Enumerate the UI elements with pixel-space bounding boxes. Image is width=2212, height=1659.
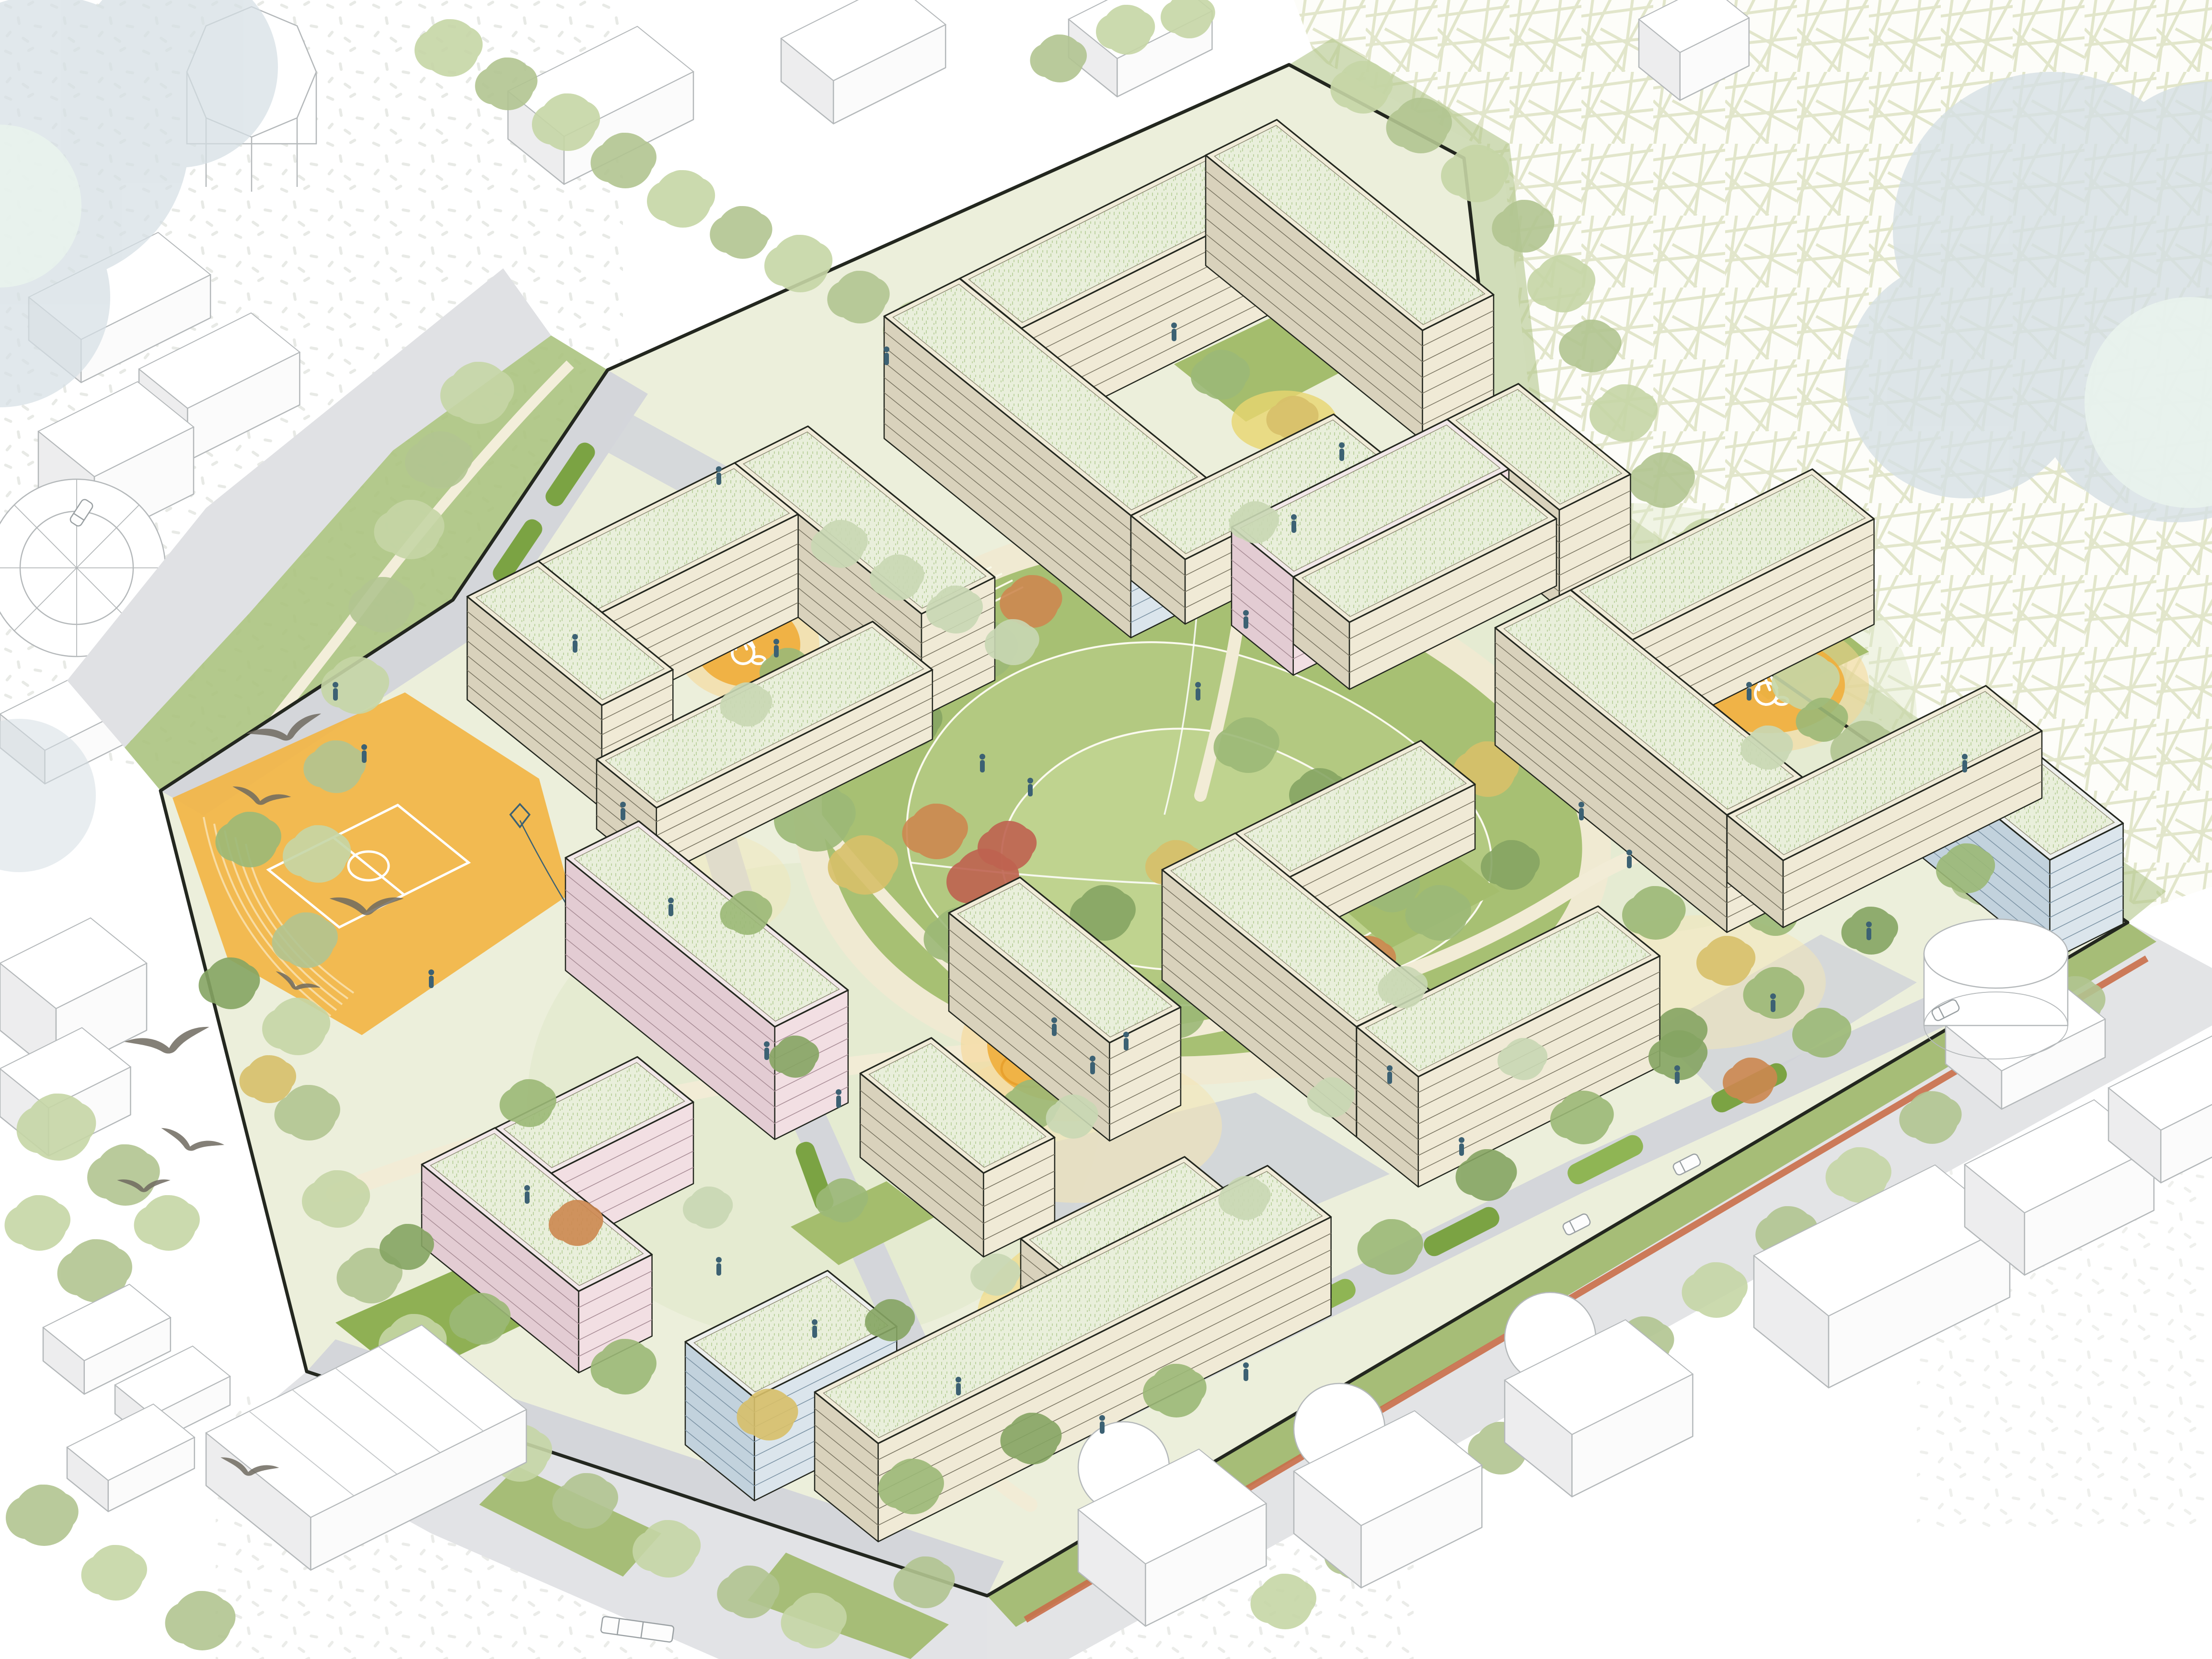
person-figure — [1746, 682, 1752, 701]
person-figure — [764, 1041, 770, 1060]
person-figure — [1339, 442, 1345, 461]
person-figure — [572, 634, 578, 653]
person-figure — [1243, 1362, 1249, 1381]
person-figure — [333, 682, 338, 701]
masterplan-axonometric-illustration — [0, 0, 2212, 1659]
person-figure — [836, 1089, 841, 1108]
person-figure — [620, 802, 626, 820]
person-figure — [1243, 610, 1249, 629]
person-figure — [956, 1377, 961, 1395]
person-figure — [1962, 754, 1968, 772]
person-figure — [1051, 1017, 1057, 1036]
person-figure — [1626, 850, 1632, 868]
person-figure — [1099, 1415, 1105, 1434]
masterplan-stage — [0, 0, 2212, 1659]
person-figure — [1578, 802, 1584, 820]
person-figure — [1027, 778, 1033, 796]
person-figure — [812, 1319, 818, 1338]
person-figure — [884, 346, 889, 365]
person-figure — [1674, 1065, 1680, 1084]
person-figure — [1090, 1056, 1095, 1074]
person-figure — [716, 466, 722, 485]
person-figure — [361, 744, 367, 763]
person-figure — [716, 1257, 722, 1276]
person-figure — [1866, 922, 1872, 940]
person-figure — [773, 639, 779, 657]
person-figure — [979, 754, 985, 772]
person-figure — [1123, 1032, 1129, 1050]
person-figure — [1387, 1065, 1393, 1084]
person-figure — [668, 898, 674, 916]
person-figure — [1171, 323, 1177, 341]
person-figure — [1770, 993, 1776, 1012]
person-figure — [428, 969, 434, 988]
person-figure — [1459, 1137, 1464, 1156]
person-figure — [1195, 682, 1201, 701]
person-figure — [524, 1185, 530, 1204]
person-figure — [1291, 514, 1297, 533]
